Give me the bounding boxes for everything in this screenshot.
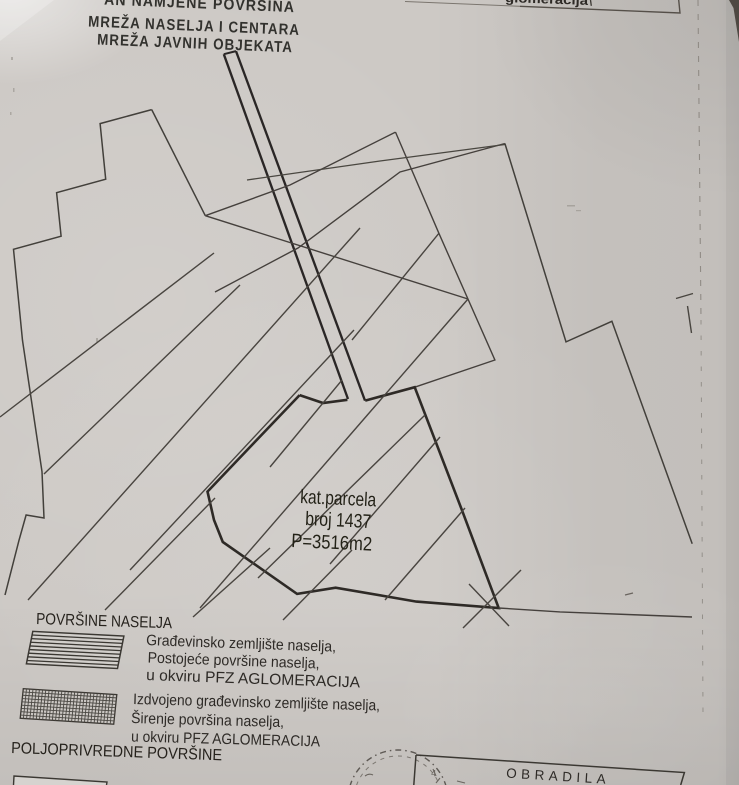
- svg-text:broj 1437: broj 1437: [305, 508, 372, 533]
- svg-text:P=3516m2: P=3516m2: [291, 530, 373, 556]
- svg-text:4: 4: [431, 768, 437, 778]
